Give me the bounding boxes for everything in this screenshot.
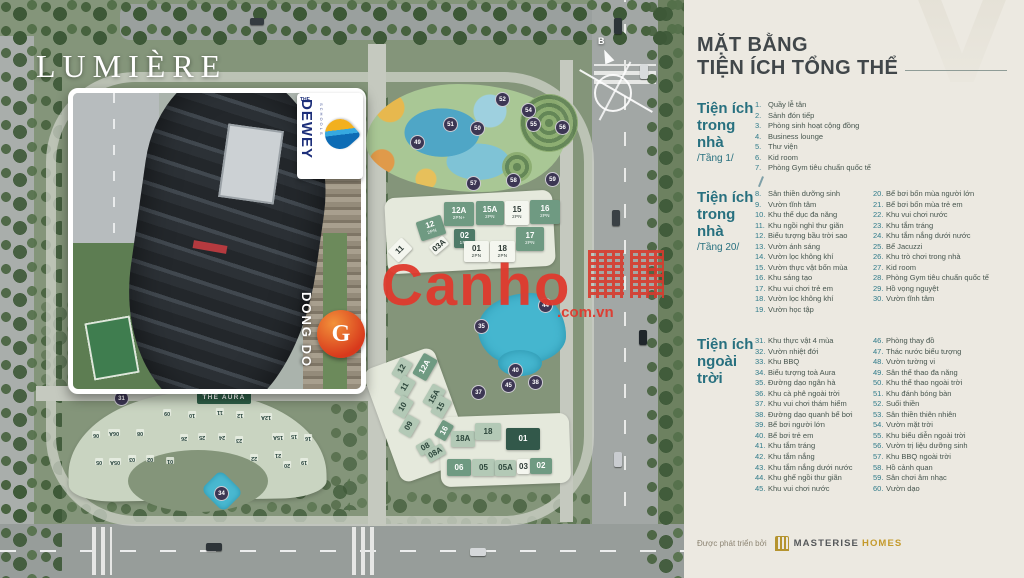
legend-item: 3. Phòng sinh hoạt cộng đồng [755,121,873,132]
legend-item-text: Bể bơi người lớn [768,420,873,431]
aura-unit-label: 12A [260,413,272,420]
amenity-marker: 49 [410,135,425,150]
legend-item-text: Vườn trị liệu dưỡng sinh [886,441,991,452]
project-logo: LUMIÈRE [36,48,227,85]
legend-item-number: 6. [755,153,768,164]
block-number: 12A [418,359,432,376]
legend-item-text: Vườn tĩnh tâm [886,294,991,305]
aura-unit-label: 05A [109,458,121,465]
legend-item-text: Khu thể thao ngoài trời [886,378,991,389]
block-unit-type: 2PN [485,215,495,220]
amenity-marker: 52 [495,92,510,107]
block-unit-type: 2PN [427,229,438,236]
dewey-wordmark: DEWEY [299,99,313,159]
dewey-logo-card: THE DEWEY SCHOOLS [297,93,363,179]
legend-item: 29. Hồ vọng nguyệt [873,284,991,295]
aura-unit-label: 02 [146,455,154,462]
amenity-marker: 55 [526,117,541,132]
page-title-line2: TIỆN ÍCH TỔNG THỂ [697,57,898,80]
legend-list: 1. Quầy lễ tân 2. Sảnh đón tiếp 3. Phòng… [755,100,873,174]
legend-item-number: 7. [755,163,768,174]
legend-item-text: Khu tắm tráng [886,221,991,232]
page-title: MẶT BẰNG TIỆN ÍCH TỔNG THỂ [697,34,898,80]
legend-item-text: Phòng Gym tiêu chuẩn quốc tế [886,273,991,284]
legend-item: 46. Phòng thay đồ [873,336,991,347]
amenity-marker: 38 [528,375,543,390]
legend-item: 39. Bể bơi người lớn [755,420,873,431]
legend-item-number: 33. [755,357,768,368]
aura-unit-label: 23 [235,436,243,443]
legend-item-text: Đường dạo quanh bể bơi [768,410,873,421]
amenity-marker: 59 [545,172,560,187]
legend-section-indoor-l20: Tiện ích trong nhà /Tầng 20/ 8. Sân thiề… [697,189,991,316]
legend-item: 19. Vườn học tập [755,305,873,316]
legend-item-text: Sân thiền thiên nhiên [886,410,991,421]
block-number: 16 [541,205,550,213]
legend-item: 60. Vườn dạo [873,484,991,495]
legend-item-number: 2. [755,111,768,122]
legend-item: 26. Khu trò chơi trong nhà [873,252,991,263]
legend-item-number: 29. [873,284,886,295]
legend-item-text: Khu thể dục đa năng [768,210,873,221]
legend-item: 4. Business lounge [755,132,873,143]
aura-unit-label: 01 [166,457,174,464]
legend-item-text: Khu vui chơi thám hiểm [768,399,873,410]
amenity-marker: 54 [521,103,536,118]
legend-item-number: 17. [755,284,768,295]
legend-item-number: 22. [873,210,886,221]
tree-grove [0,0,684,48]
legend-item-number: 26. [873,252,886,263]
section-header: Tiện ích ngoài trời [697,336,755,494]
legend-item: 37. Khu vui chơi thám hiểm [755,399,873,410]
legend-item: 51. Khu đánh bóng bàn [873,389,991,400]
aura-unit-label: 08 [136,429,144,436]
legend-item: 35. Đường dạo ngân hà [755,378,873,389]
legend-item-number: 34. [755,368,768,379]
legend-item: 59. Sân chơi âm nhạc [873,473,991,484]
legend-item-number: 37. [755,399,768,410]
south-tower-deck-east [439,413,571,487]
legend-item-text: Hồ vọng nguyệt [886,284,991,295]
legend-item: 16. Khu sáng tạo [755,273,873,284]
compass-arrow-icon [600,48,615,65]
legend-item-text: Khu sáng tạo [768,273,873,284]
block-number: 12 [396,363,407,375]
legend-item-number: 56. [873,441,886,452]
legend-item-number: 40. [755,431,768,442]
legend-item-number: 8. [755,189,768,200]
legend-item: 23. Khu tắm tráng [873,221,991,232]
section-header-floor: /Tầng 1/ [697,153,755,164]
legend-list: 46. Phòng thay đồ 47. Thác nước biểu tượ… [873,336,991,494]
aura-unit-label: 16 [304,434,312,441]
dewey-schools-label: SCHOOLS [319,103,324,137]
legend-item-text: Khu BBQ [768,357,873,368]
legend-item: 48. Vườn tường vi [873,357,991,368]
developer-footer: Được phát triển bởi MASTERISE HOMES [697,536,902,551]
block-number: 02 [460,232,469,240]
dongdo-logo-group: DONG DO G [299,292,369,382]
legend-item-number: 27. [873,263,886,274]
legend-item-text: Vườn học tập [768,305,873,316]
aura-unit-label: 15A [272,433,284,440]
legend-item-text: Khu tắm nắng dưới nước [768,463,873,474]
block-number: 18A [456,435,471,443]
legend-item-text: Vườn dạo [886,484,991,495]
section-columns: 1. Quầy lễ tân 2. Sảnh đón tiếp 3. Phòng… [755,100,873,174]
legend-item: 47. Thác nước biểu tượng [873,347,991,358]
section-header-line: Tiện ích [697,336,755,353]
legend-item-text: Bể Jacuzzi [886,242,991,253]
section-header: Tiện ích trong nhà /Tầng 1/ [697,100,755,174]
legend-item-text: Vườn lọc không khí [768,252,873,263]
legend-item-text: Khu biểu diễn ngoài trời [886,431,991,442]
building-block: 18A [451,431,475,447]
car-icon [470,548,486,556]
aura-unit-label: 03 [128,455,136,462]
legend-item-text: Khu thực vật 4 mùa [768,336,873,347]
legend-item-number: 4. [755,132,768,143]
legend-item: 11. Khu ngồi nghỉ thư giãn [755,221,873,232]
legend-item-text: Thác nước biểu tượng [886,347,991,358]
legend-item-number: 52. [873,399,886,410]
building-block: 18 [475,423,501,440]
amenity-marker: 57 [466,176,481,191]
legend-item-number: 39. [755,420,768,431]
legend-item: 58. Hồ cảnh quan [873,463,991,474]
inset-tower [218,123,284,204]
legend-item: 34. Biểu tượng toà Aura [755,368,873,379]
legend-item-number: 12. [755,231,768,242]
section-divider-slash [758,176,764,187]
page-title-line1: MẶT BẰNG [697,34,898,57]
legend-item: 9. Vườn tĩnh tâm [755,200,873,211]
legend-item-number: 28. [873,273,886,284]
dongdo-g-glyph: G [332,321,351,348]
legend-item-text: Đường dạo ngân hà [768,378,873,389]
block-number: 16 [438,425,449,437]
legend-item: 42. Khu tắm nắng [755,452,873,463]
legend-item-text: Sân thiền dưỡng sinh [768,189,873,200]
legend-item: 15. Vườn thực vật bốn mùa [755,263,873,274]
watermark-glyph-block [588,250,624,298]
legend-item-text: Biểu tượng toà Aura [768,368,873,379]
amenity-marker: 34 [214,486,229,501]
legend-item-number: 19. [755,305,768,316]
legend-item-number: 24. [873,231,886,242]
aura-unit-label: 24 [218,433,226,440]
legend-item: 43. Khu tắm nắng dưới nước [755,463,873,474]
legend-item: 30. Vườn tĩnh tâm [873,294,991,305]
aura-unit-label: 25 [198,433,206,440]
block-number: 01 [472,245,481,253]
legend-item-text: Khu tắm nắng dưới nước [886,231,991,242]
block-number: 12A [452,207,467,215]
legend-item: 1. Quầy lễ tân [755,100,873,111]
legend-item-number: 49. [873,368,886,379]
legend-item: 40. Bể bơi trẻ em [755,431,873,442]
amenity-marker: 50 [470,121,485,136]
car-icon [612,210,620,226]
aura-unit-label: 22 [250,454,258,461]
legend-item: 24. Khu tắm nắng dưới nước [873,231,991,242]
developer-prefix: Được phát triển bởi [697,539,767,548]
aura-unit-label: 20 [283,461,291,468]
legend-item-number: 53. [873,410,886,421]
building-block: 05A [495,460,516,476]
legend-item: 27. Kid room [873,263,991,274]
section-columns: 31. Khu thực vật 4 mùa 32. Vườn nhiệt đớ… [755,336,991,494]
watermark-word: Canho [381,256,571,316]
aura-unit-label: 10 [188,411,196,418]
legend-item-number: 55. [873,431,886,442]
legend-item: 56. Vườn trị liệu dưỡng sinh [873,441,991,452]
crosswalk [92,527,112,575]
block-number: 05 [479,464,488,472]
legend-item-number: 16. [755,273,768,284]
block-number: 18 [484,428,493,436]
dongdo-wordmark: DONG DO [299,292,314,368]
block-number: 17 [526,232,535,240]
legend-item: 55. Khu biểu diễn ngoài trời [873,431,991,442]
legend-item-number: 42. [755,452,768,463]
legend-item-text: Hồ cảnh quan [886,463,991,474]
legend-item-text: Vườn mặt trời [886,420,991,431]
car-icon [250,18,264,25]
building-block: 03 [517,459,530,474]
legend-item: 52. Suối thiền [873,399,991,410]
legend-item-text: Vườn tường vi [886,357,991,368]
legend-item-text: Sảnh đón tiếp [768,111,873,122]
legend-item: 22. Khu vui chơi nước [873,210,991,221]
car-icon [206,543,222,551]
legend-list: 31. Khu thực vật 4 mùa 32. Vườn nhiệt đớ… [755,336,873,494]
legend-item-text: Sân thể thao đa năng [886,368,991,379]
legend-item: 57. Khu BBQ ngoài trời [873,452,991,463]
legend-item-text: Khu tắm nắng [768,452,873,463]
legend-item-number: 59. [873,473,886,484]
site-plan-map: THE AURA 12 2PN 12A 2PN+ 15A 2PN 15 2PN … [0,0,684,578]
legend-item-number: 20. [873,189,886,200]
legend-item-number: 23. [873,221,886,232]
legend-item: 2. Sảnh đón tiếp [755,111,873,122]
building-block: 15 2PN [505,201,529,225]
section-header-floor: /Tầng 20/ [697,242,755,253]
legend-item-text: Vườn thực vật bốn mùa [768,263,873,274]
legend-item: 6. Kid room [755,153,873,164]
legend-section-indoor-l1: Tiện ích trong nhà /Tầng 1/ 1. Quầy lễ t… [697,100,873,174]
legend-item: 10. Khu thể dục đa năng [755,210,873,221]
legend-item: 38. Đường dạo quanh bể bơi [755,410,873,421]
legend-item: 7. Phòng Gym tiêu chuẩn quốc tế [755,163,873,174]
legend-item-number: 10. [755,210,768,221]
legend-item-text: Khu vui chơi trẻ em [768,284,873,295]
legend-item-text: Khu ghế ngồi thư giãn [768,473,873,484]
legend-item-number: 31. [755,336,768,347]
aura-unit-label: 26 [180,434,188,441]
block-number: 11 [399,381,410,392]
legend-item: 45. Khu vui chơi nước [755,484,873,495]
legend-item-number: 41. [755,441,768,452]
amenity-marker: 56 [555,120,570,135]
legend-item-number: 14. [755,252,768,263]
legend-item-number: 60. [873,484,886,495]
block-unit-type: 2PN+ [453,216,466,221]
legend-item-number: 46. [873,336,886,347]
legend-item: 41. Khu tắm tráng [755,441,873,452]
legend-item-text: Bể bơi bốn mùa trẻ em [886,200,991,211]
block-number: 15A [483,206,498,214]
block-number: 01 [519,435,528,443]
building-block: 02 [530,458,552,474]
legend-item-number: 5. [755,142,768,153]
building-block: 01 [506,428,540,450]
building-block: 17 2PN [516,227,544,251]
block-number: 15 [435,401,446,413]
legend-item-text: Phòng sinh hoạt cộng đồng [768,121,873,132]
developer-brand: MASTERISE [794,538,859,549]
legend-item-text: Phòng thay đồ [886,336,991,347]
legend-item-text: Bể bơi trẻ em [768,431,873,442]
amenity-marker: 35 [474,319,489,334]
legend-item: 18. Vườn lọc không khí [755,294,873,305]
block-number: 02 [537,462,546,470]
legend-item: 8. Sân thiền dưỡng sinh [755,189,873,200]
aura-unit-label: 09 [163,409,171,416]
legend-item-number: 25. [873,242,886,253]
section-header-line: trong nhà [697,206,755,240]
legend-item: 28. Phòng Gym tiêu chuẩn quốc tế [873,273,991,284]
car-icon [614,18,622,34]
legend-item-number: 1. [755,100,768,111]
legend-item-text: Khu vui chơi nước [886,210,991,221]
legend-item: 25. Bể Jacuzzi [873,242,991,253]
legend-item: 53. Sân thiền thiên nhiên [873,410,991,421]
block-number: 09 [403,420,414,432]
legend-item-number: 36. [755,389,768,400]
legend-list: 8. Sân thiền dưỡng sinh 9. Vườn tĩnh tâm… [755,189,873,316]
legend-item-number: 3. [755,121,768,132]
building-block: 12A 2PN+ [444,202,474,226]
section-header-line: trong nhà [697,117,755,151]
block-number: 03 [519,463,528,471]
amenity-marker: 37 [471,385,486,400]
aura-unit-label: 06A [108,429,120,436]
legend-item-number: 48. [873,357,886,368]
compass-north-label: B [598,36,605,46]
legend-item-text: Khu đánh bóng bàn [886,389,991,400]
legend-item-text: Kid room [886,263,991,274]
aura-unit-label: 12 [236,411,244,418]
section-header-line: ngoài trời [697,353,755,387]
masterise-logo-icon [775,536,789,551]
legend-item-text: Vườn lọc không khí [768,294,873,305]
section-header: Tiện ích trong nhà /Tầng 20/ [697,189,755,316]
legend-item: 33. Khu BBQ [755,357,873,368]
legend-item: 5. Thư viện [755,142,873,153]
legend-item: 49. Sân thể thao đa năng [873,368,991,379]
legend-item-text: Vườn tĩnh tâm [768,200,873,211]
block-unit-type: 2PN [525,241,535,246]
legend-item-text: Khu trò chơi trong nhà [886,252,991,263]
legend-item-text: Kid room [768,153,873,164]
legend-item-number: 30. [873,294,886,305]
aura-unit-label: 19 [300,458,308,465]
building-block: 16 2PN [530,200,560,224]
legend-item-number: 51. [873,389,886,400]
legend-panel: MẶT BẰNG TIỆN ÍCH TỔNG THỂ Tiện ích tron… [684,0,1024,578]
amenity-marker: 45 [501,378,516,393]
legend-item: 54. Vườn mặt trời [873,420,991,431]
legend-item: 36. Khu cà phê ngoài trời [755,389,873,400]
legend-item-number: 18. [755,294,768,305]
legend-item-number: 47. [873,347,886,358]
legend-item-text: Phòng Gym tiêu chuẩn quốc tế [768,163,873,174]
legend-item-number: 58. [873,463,886,474]
legend-item-number: 38. [755,410,768,421]
legend-item: 32. Vườn nhiệt đới [755,347,873,358]
legend-item-number: 9. [755,200,768,211]
legend-item-number: 35. [755,378,768,389]
legend-item-number: 13. [755,242,768,253]
legend-item: 14. Vườn lọc không khí [755,252,873,263]
legend-item-number: 57. [873,452,886,463]
legend-item: 17. Khu vui chơi trẻ em [755,284,873,295]
legend-item-number: 11. [755,221,768,232]
block-number: 05A [498,464,513,472]
amenity-marker: 51 [443,117,458,132]
legend-item: 50. Khu thể thao ngoài trời [873,378,991,389]
amenity-marker: 40 [508,363,523,378]
legend-item-text: Bể bơi bốn mùa người lớn [886,189,991,200]
compass: B [586,36,646,136]
aura-unit-label: 21 [274,451,282,458]
aura-unit-label: 15 [290,432,298,439]
watermark-glyph-block [630,250,664,298]
car-icon [639,330,647,345]
legend-item-text: Vườn ánh sáng [768,242,873,253]
section-header-line: Tiện ích [697,100,755,117]
block-number: 10 [397,401,408,413]
legend-item: 21. Bể bơi bốn mùa trẻ em [873,200,991,211]
legend-item-text: Quầy lễ tân [768,100,873,111]
amenity-marker: 58 [506,173,521,188]
legend-item-number: 50. [873,378,886,389]
legend-item-number: 54. [873,420,886,431]
legend-item-text: Khu ngồi nghỉ thư giãn [768,221,873,232]
building-block: 06 [447,459,471,476]
legend-item-text: Khu cà phê ngoài trời [768,389,873,400]
aura-unit-label: 11 [216,408,224,415]
legend-item-text: Biểu tượng bầu trời sao [768,231,873,242]
title-rule [905,70,1007,71]
legend-item-text: Business lounge [768,132,873,143]
legend-item-number: 45. [755,484,768,495]
developer-brand-suffix: HOMES [862,538,902,549]
legend-item-number: 21. [873,200,886,211]
legend-section-outdoor: Tiện ích ngoài trời 31. Khu thực vật 4 m… [697,336,991,494]
block-number: 15 [513,206,522,214]
legend-item-number: 44. [755,473,768,484]
screenshot-root: THE AURA 12 2PN 12A 2PN+ 15A 2PN 15 2PN … [0,0,1024,578]
watermark-suffix: .com.vn [557,304,614,321]
legend-item: 12. Biểu tượng bầu trời sao [755,231,873,242]
dongdo-emblem-icon: G [317,310,365,358]
legend-item-text: Sân chơi âm nhạc [886,473,991,484]
building-block: 05 [472,459,495,476]
section-columns: 8. Sân thiền dưỡng sinh 9. Vườn tĩnh tâm… [755,189,991,316]
